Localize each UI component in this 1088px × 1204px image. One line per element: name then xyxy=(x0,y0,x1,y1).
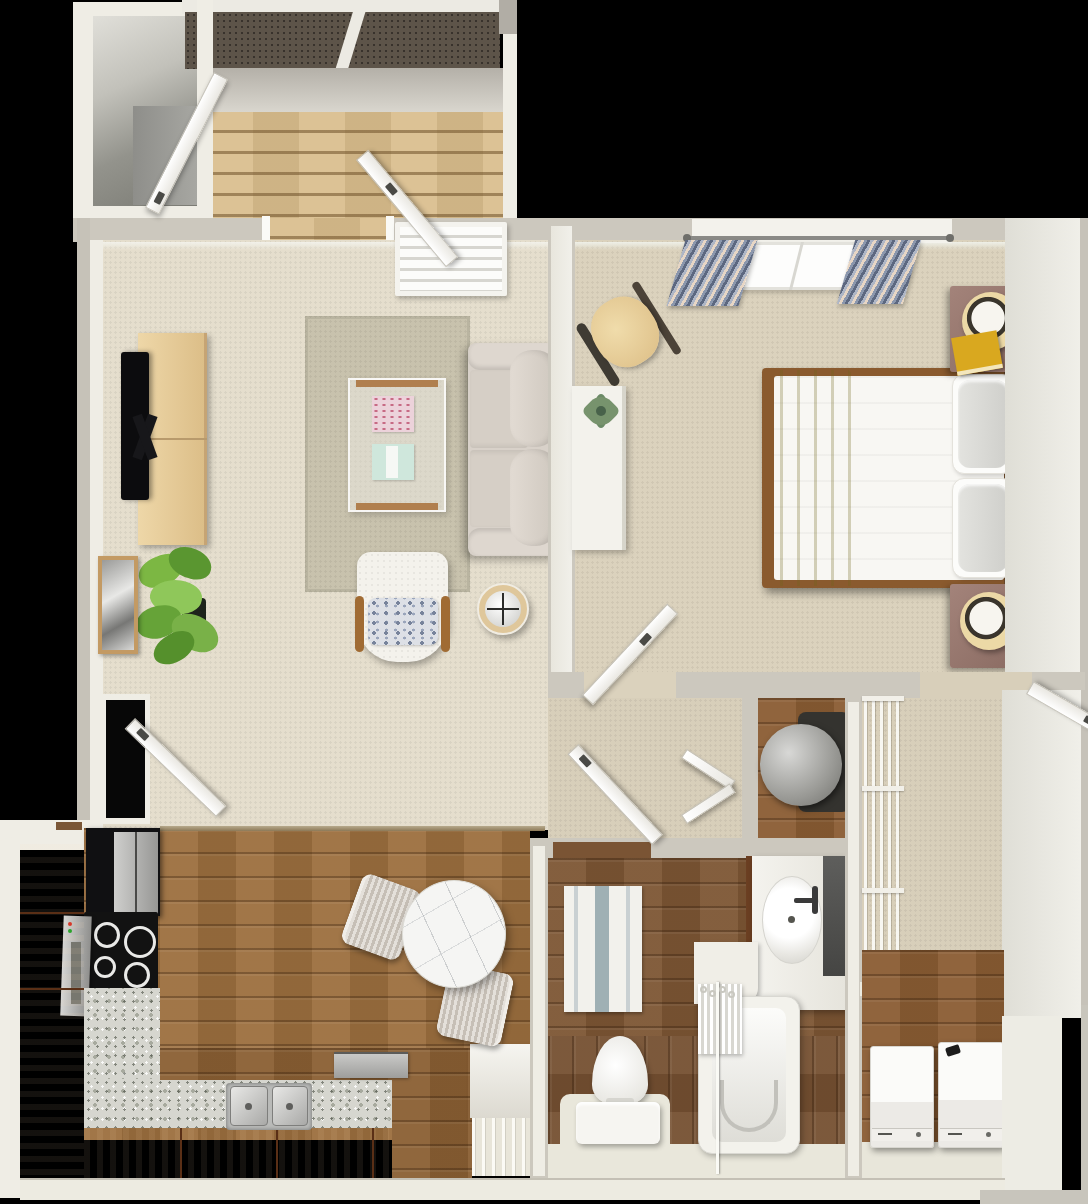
closet-right-wall-edge xyxy=(1081,690,1088,1018)
bed-mattress xyxy=(774,376,1004,580)
nightstand-bottom xyxy=(950,584,1024,668)
closet-right-wall xyxy=(1002,690,1084,1018)
bath-floor-lower xyxy=(548,1036,845,1148)
water-heater xyxy=(760,724,842,806)
lamp-top xyxy=(962,292,1020,350)
lamp-bottom xyxy=(960,592,1018,650)
pillow-stack-2 xyxy=(952,478,1014,578)
shower-curtain-rod xyxy=(716,982,719,1174)
door-handle xyxy=(1083,715,1088,727)
kitchen-outer-wall xyxy=(0,842,20,1198)
succulent-leaf xyxy=(584,404,618,418)
wire-shelf-mid-2 xyxy=(862,888,904,893)
sink-drain xyxy=(788,916,795,923)
front-doorjamb-left xyxy=(262,216,270,246)
bottom-wall xyxy=(20,1178,1005,1200)
faucet-handle xyxy=(812,886,818,914)
accent-chair-pillow xyxy=(368,598,438,645)
desk-chair-leg xyxy=(631,280,682,355)
burner-1 xyxy=(94,922,120,948)
dryer-panel-dot xyxy=(986,1132,991,1137)
curtain-ring-1 xyxy=(700,986,707,993)
curtain-left xyxy=(667,240,758,306)
tub-surround-ledge xyxy=(694,942,758,1004)
hall-closet-stub-wall xyxy=(742,698,758,840)
living-kitchen-threshold xyxy=(160,826,545,831)
tv-mount xyxy=(132,414,157,461)
book-teal-band xyxy=(386,446,398,478)
curtain-ring-2 xyxy=(709,990,716,997)
coffee-table-trim-bottom xyxy=(356,503,438,510)
toilet-tank xyxy=(576,1102,660,1144)
kitchen-sink xyxy=(226,1083,312,1130)
fridge-doors xyxy=(114,832,158,914)
cabinet-column xyxy=(20,844,84,1184)
cabinet-row-seam-2 xyxy=(276,1124,278,1184)
kitchen-bath-wall xyxy=(530,842,548,1180)
plant-leaf-1 xyxy=(134,549,187,593)
nightstand-top xyxy=(950,286,1024,372)
desk-chair xyxy=(570,271,701,405)
range-indicator-green xyxy=(68,929,72,933)
curtain-ring-4 xyxy=(728,991,735,998)
granite-counter-column xyxy=(84,988,160,1080)
bath-closet-wall-face xyxy=(848,702,859,1176)
counter-corner-wood xyxy=(392,1048,472,1182)
cooktop xyxy=(84,912,158,992)
book-pink xyxy=(372,396,414,432)
top-wall xyxy=(73,218,1085,242)
tv xyxy=(121,352,149,500)
dining-table xyxy=(402,880,506,988)
desk-succulent xyxy=(580,390,622,434)
desk-chair-seat xyxy=(579,285,670,378)
toilet-hinge xyxy=(606,1098,634,1108)
accent-chair-arm-right xyxy=(441,596,450,652)
entry-closet-dark xyxy=(106,700,145,818)
side-entry-door xyxy=(125,718,227,817)
cabinet-column-seam-1 xyxy=(20,912,84,914)
accent-chair-arm-left xyxy=(355,596,364,652)
living-left-wall xyxy=(77,218,90,830)
fridge xyxy=(86,828,160,916)
bedroom-window-pane-bar xyxy=(789,242,804,290)
bathtub-inner-rim xyxy=(720,1080,778,1132)
plant-leaf-5 xyxy=(165,607,225,658)
linen-closet xyxy=(864,700,902,984)
walk-in-closet xyxy=(904,700,1004,952)
coffee-table xyxy=(348,378,446,512)
succulent-leaf xyxy=(581,391,621,431)
bottom-right-corner xyxy=(980,1190,1088,1204)
side-door-threshold xyxy=(56,822,82,830)
burner-2 xyxy=(124,926,156,958)
plant-pot xyxy=(182,598,206,632)
washer-panel-dash xyxy=(878,1133,892,1135)
living-rug xyxy=(305,316,470,592)
photo-frame xyxy=(98,556,138,654)
deck-floor xyxy=(207,112,503,218)
bathtub xyxy=(698,996,800,1154)
faucet-spout xyxy=(794,898,816,903)
bedroom-floor xyxy=(575,240,1005,676)
toilet-bowl xyxy=(592,1036,648,1106)
dryer-panel-dash xyxy=(948,1133,962,1135)
plant-leaf-6 xyxy=(148,625,200,671)
fridge-door-split xyxy=(135,832,137,914)
sofa-seat-1 xyxy=(470,370,528,448)
wire-shelf-top xyxy=(862,696,904,701)
kitchen-corner-chamfer xyxy=(0,830,39,857)
shower-curtain xyxy=(698,984,742,1054)
laundry-right-wall xyxy=(1002,1016,1062,1198)
door-handle xyxy=(579,754,592,768)
bathtub-inner xyxy=(712,1008,786,1142)
desk-chair-back xyxy=(575,321,622,387)
dishwasher xyxy=(334,1052,408,1078)
cabinet-row xyxy=(84,1124,472,1184)
succulent-leaf xyxy=(594,394,608,428)
sink-drain-left xyxy=(245,1103,252,1110)
living-left-wall-face xyxy=(90,240,103,830)
deck-concrete xyxy=(207,68,503,112)
pillow-stack-1 xyxy=(952,374,1014,474)
plant-leaf-2 xyxy=(165,543,215,583)
nightstand-book-yellow xyxy=(951,330,1003,375)
washer-panel-dot xyxy=(916,1132,921,1137)
cabinet-row-seam-3 xyxy=(372,1124,374,1184)
burner-3 xyxy=(94,956,116,978)
sink-drain-right xyxy=(286,1103,293,1110)
curtain-right xyxy=(837,240,921,304)
range-indicator-red xyxy=(68,922,72,926)
side-table-ornament-bar-2 xyxy=(502,593,504,625)
vanity xyxy=(752,856,846,1010)
right-edge-lower xyxy=(1081,1005,1088,1204)
succulent-center xyxy=(596,406,606,416)
vanity-sink xyxy=(762,876,822,964)
bed xyxy=(762,368,1016,588)
door-handle xyxy=(154,191,166,205)
bedroom-top-lip xyxy=(575,242,1005,250)
bath-floor-upper xyxy=(548,858,845,1038)
side-table-ornament-bar-1 xyxy=(487,608,519,610)
door-handle xyxy=(639,633,652,647)
pillow-stack-1-top xyxy=(958,380,1008,468)
bed-throw xyxy=(780,370,868,586)
bedroom-desk xyxy=(572,386,626,550)
sink-basin-left xyxy=(230,1086,268,1126)
pillow-stack-2-top xyxy=(958,484,1008,572)
entry-closet-frame xyxy=(100,694,150,824)
range-control-strip xyxy=(60,916,91,1017)
dining-chair-2 xyxy=(435,962,515,1048)
slat-rack xyxy=(472,1118,535,1176)
cabinet-row-seam-1 xyxy=(180,1124,182,1184)
front-doorjamb-right xyxy=(386,216,394,246)
entry-deck xyxy=(73,0,517,218)
bedroom-window-pane xyxy=(722,242,879,290)
living-top-lip xyxy=(103,242,548,250)
counter-bar-wood xyxy=(160,1048,392,1080)
tv-console-seam xyxy=(138,438,207,440)
bedroom-art xyxy=(1022,368,1058,554)
kitchen-floor xyxy=(84,828,530,1140)
kitchen-left-wall-chunk xyxy=(0,820,103,850)
coffee-table-trim-top xyxy=(356,380,438,387)
tv-mount-arm xyxy=(132,414,157,461)
bath-door-threshold xyxy=(553,842,651,858)
living-floor xyxy=(103,240,548,830)
tv-console xyxy=(138,333,207,545)
bath-rug xyxy=(564,886,642,1012)
side-table-tray xyxy=(485,591,521,627)
bedroom-right-wall-edge xyxy=(1080,218,1088,690)
granite-counter-row xyxy=(84,1078,392,1128)
sink-basin-right xyxy=(272,1086,308,1126)
plant-leaf-3 xyxy=(148,577,204,618)
book-teal xyxy=(372,444,414,480)
dining-chair-1 xyxy=(339,872,423,963)
door-handle xyxy=(385,182,398,196)
vanity-side xyxy=(746,856,754,1010)
vanity-dark-panel xyxy=(823,856,845,976)
door-handle xyxy=(136,728,149,741)
kitchen-hutch xyxy=(470,1044,537,1118)
toilet-apron xyxy=(560,1094,670,1180)
curtain-ring-3 xyxy=(719,986,726,993)
bedroom-right-wall xyxy=(1005,218,1085,690)
cabinet-column-seam-2 xyxy=(20,988,84,990)
sofa-seat-2 xyxy=(470,450,528,527)
kitchen-bath-wall-face xyxy=(533,846,545,1176)
wire-shelf-mid-1 xyxy=(862,786,904,791)
side-table xyxy=(477,583,529,635)
headboard xyxy=(1004,366,1016,588)
bath-floor-base xyxy=(548,1144,845,1180)
range-handle-slot xyxy=(71,942,81,1004)
floor-plan xyxy=(0,0,1088,1204)
front-doorway xyxy=(268,218,386,242)
deck-post xyxy=(499,0,517,34)
divider-wall-face xyxy=(551,226,572,686)
burner-4 xyxy=(124,962,150,988)
accent-chair xyxy=(357,552,448,662)
plant-leaf-4 xyxy=(133,602,185,643)
